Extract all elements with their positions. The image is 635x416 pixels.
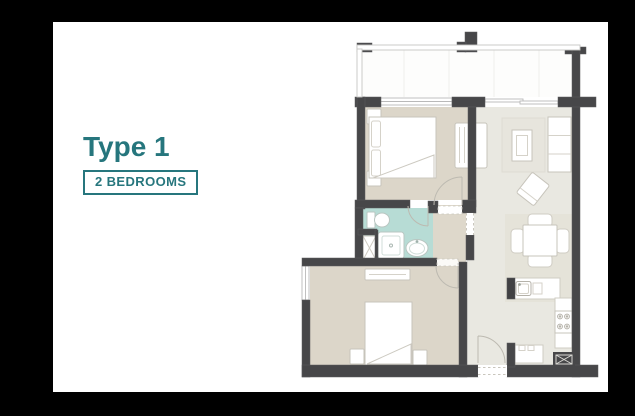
bedroom1-left-wall [357,97,365,209]
refrigerator [507,278,515,299]
shaft-wall [358,229,377,235]
plan-canvas: Type 1 2 BEDROOMS [53,22,608,392]
living-sliding-door [520,101,558,104]
bedroom2-threshold [437,259,458,266]
railing-top [357,45,580,50]
bedroom2-top-wall [302,258,437,266]
divider-wall [468,107,476,207]
railing-left [357,49,362,97]
toilet-tank [367,212,375,228]
bedroom2-right-wall [459,262,467,377]
unit-label-block: Type 1 2 BEDROOMS [83,132,198,195]
corridor-floor [467,260,475,365]
sofa [548,117,571,172]
dining-chair [511,229,524,253]
bottom-wall [302,365,478,377]
bottom-wall [507,365,598,377]
sink-faucet [416,240,419,243]
coffee-table [512,130,532,161]
dining-table [523,225,557,256]
viewer-background: { "unit": { "title": "Type 1", "badge": … [0,0,635,416]
pillow [372,121,381,147]
wall-stub [466,235,474,260]
wall-stub [462,200,476,213]
balcony-floor [361,50,572,97]
stove [555,311,572,333]
shaft-wall [375,230,378,260]
living-sliding-door [485,99,523,102]
entry-wall-stub [507,343,515,367]
nightstand [413,350,427,365]
unit-title: Type 1 [83,132,198,163]
sink-faucet [518,283,521,286]
hall-opening [438,206,462,214]
bathroom-left-wall [355,208,363,264]
dining-chair [556,229,569,253]
pillow [372,150,381,176]
unit-badge: 2 BEDROOMS [83,170,198,195]
wall-stub [428,201,438,213]
shower-drain [390,244,393,247]
drainer [533,283,542,294]
wall [355,200,410,208]
wall-t-column [452,97,485,107]
service-shaft [553,352,575,367]
wall-cross-bar [558,97,596,107]
toilet-bowl [375,213,390,227]
nightstand [350,349,364,364]
floor-plan [53,22,608,392]
